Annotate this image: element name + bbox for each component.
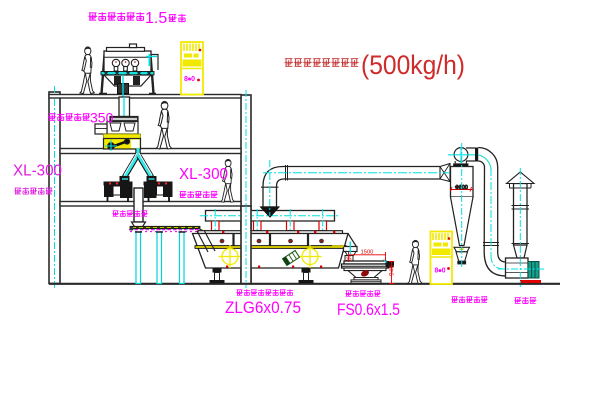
svg-text:8●0: 8●0 <box>184 76 195 83</box>
svg-text:945: 945 <box>389 265 396 276</box>
svg-text:FS0.6x1.5: FS0.6x1.5 <box>337 300 400 319</box>
svg-text:350: 350 <box>90 110 114 126</box>
svg-text:XL-300: XL-300 <box>179 166 228 183</box>
svg-text:XL-300: XL-300 <box>13 163 62 180</box>
svg-text:15: 15 <box>346 257 352 263</box>
svg-text:1.5: 1.5 <box>145 10 167 27</box>
svg-text:1500: 1500 <box>361 250 374 256</box>
svg-text:8●0: 8●0 <box>435 268 446 275</box>
svg-text:(500kg/h): (500kg/h) <box>361 50 465 79</box>
svg-text:ZLG6x0.75: ZLG6x0.75 <box>225 298 301 317</box>
